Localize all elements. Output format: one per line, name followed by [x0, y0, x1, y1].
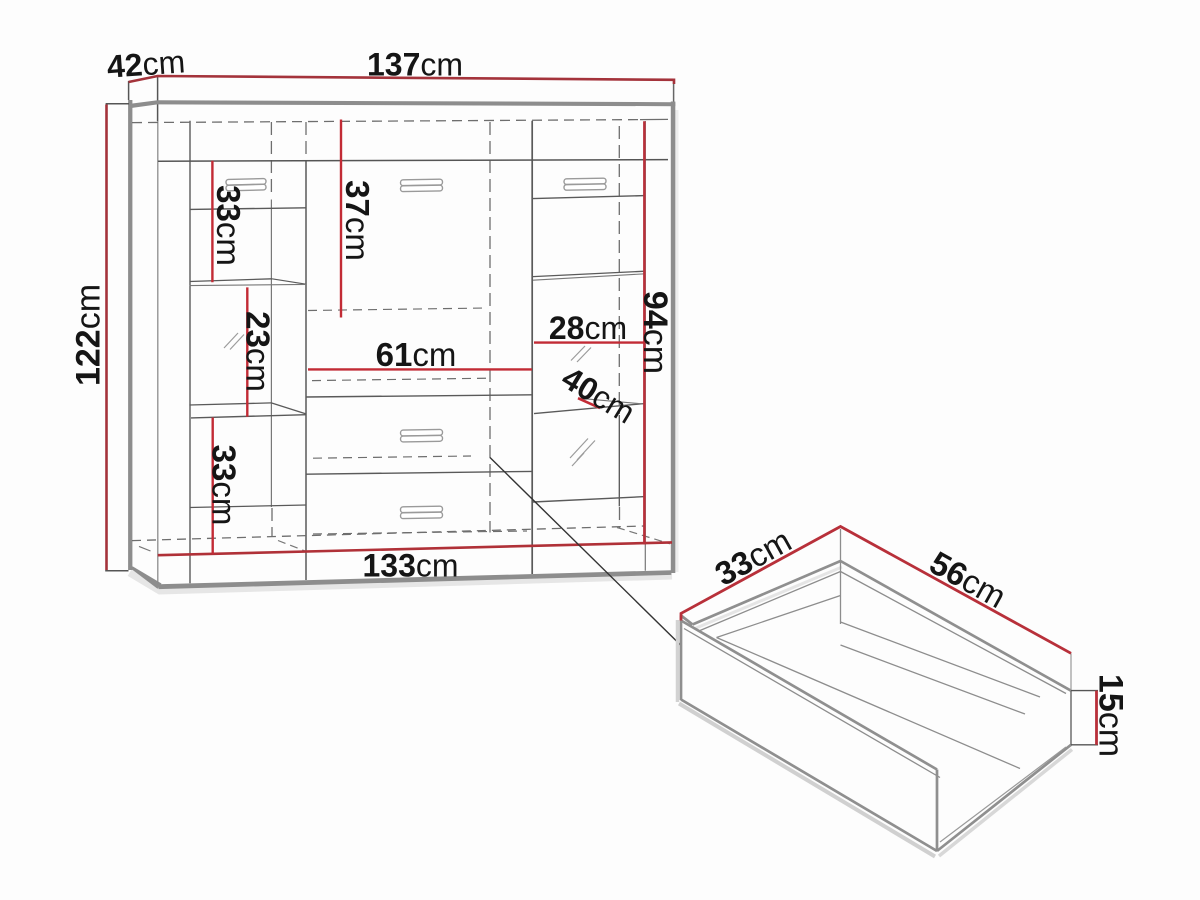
svg-text:28cm: 28cm: [549, 310, 627, 346]
svg-text:15cm: 15cm: [1092, 674, 1130, 757]
svg-text:137cm: 137cm: [367, 47, 463, 83]
svg-text:122cm: 122cm: [70, 284, 108, 386]
svg-text:37cm: 37cm: [339, 180, 376, 261]
svg-text:94cm: 94cm: [636, 291, 674, 374]
svg-text:40cm: 40cm: [556, 359, 642, 430]
svg-text:56cm: 56cm: [924, 544, 1013, 615]
svg-text:33cm: 33cm: [709, 521, 798, 592]
svg-text:42cm: 42cm: [106, 43, 187, 84]
svg-text:23cm: 23cm: [240, 311, 277, 392]
svg-text:133cm: 133cm: [362, 548, 458, 584]
svg-text:33cm: 33cm: [210, 185, 247, 266]
svg-text:33cm: 33cm: [206, 445, 243, 526]
svg-text:61cm: 61cm: [376, 336, 457, 373]
